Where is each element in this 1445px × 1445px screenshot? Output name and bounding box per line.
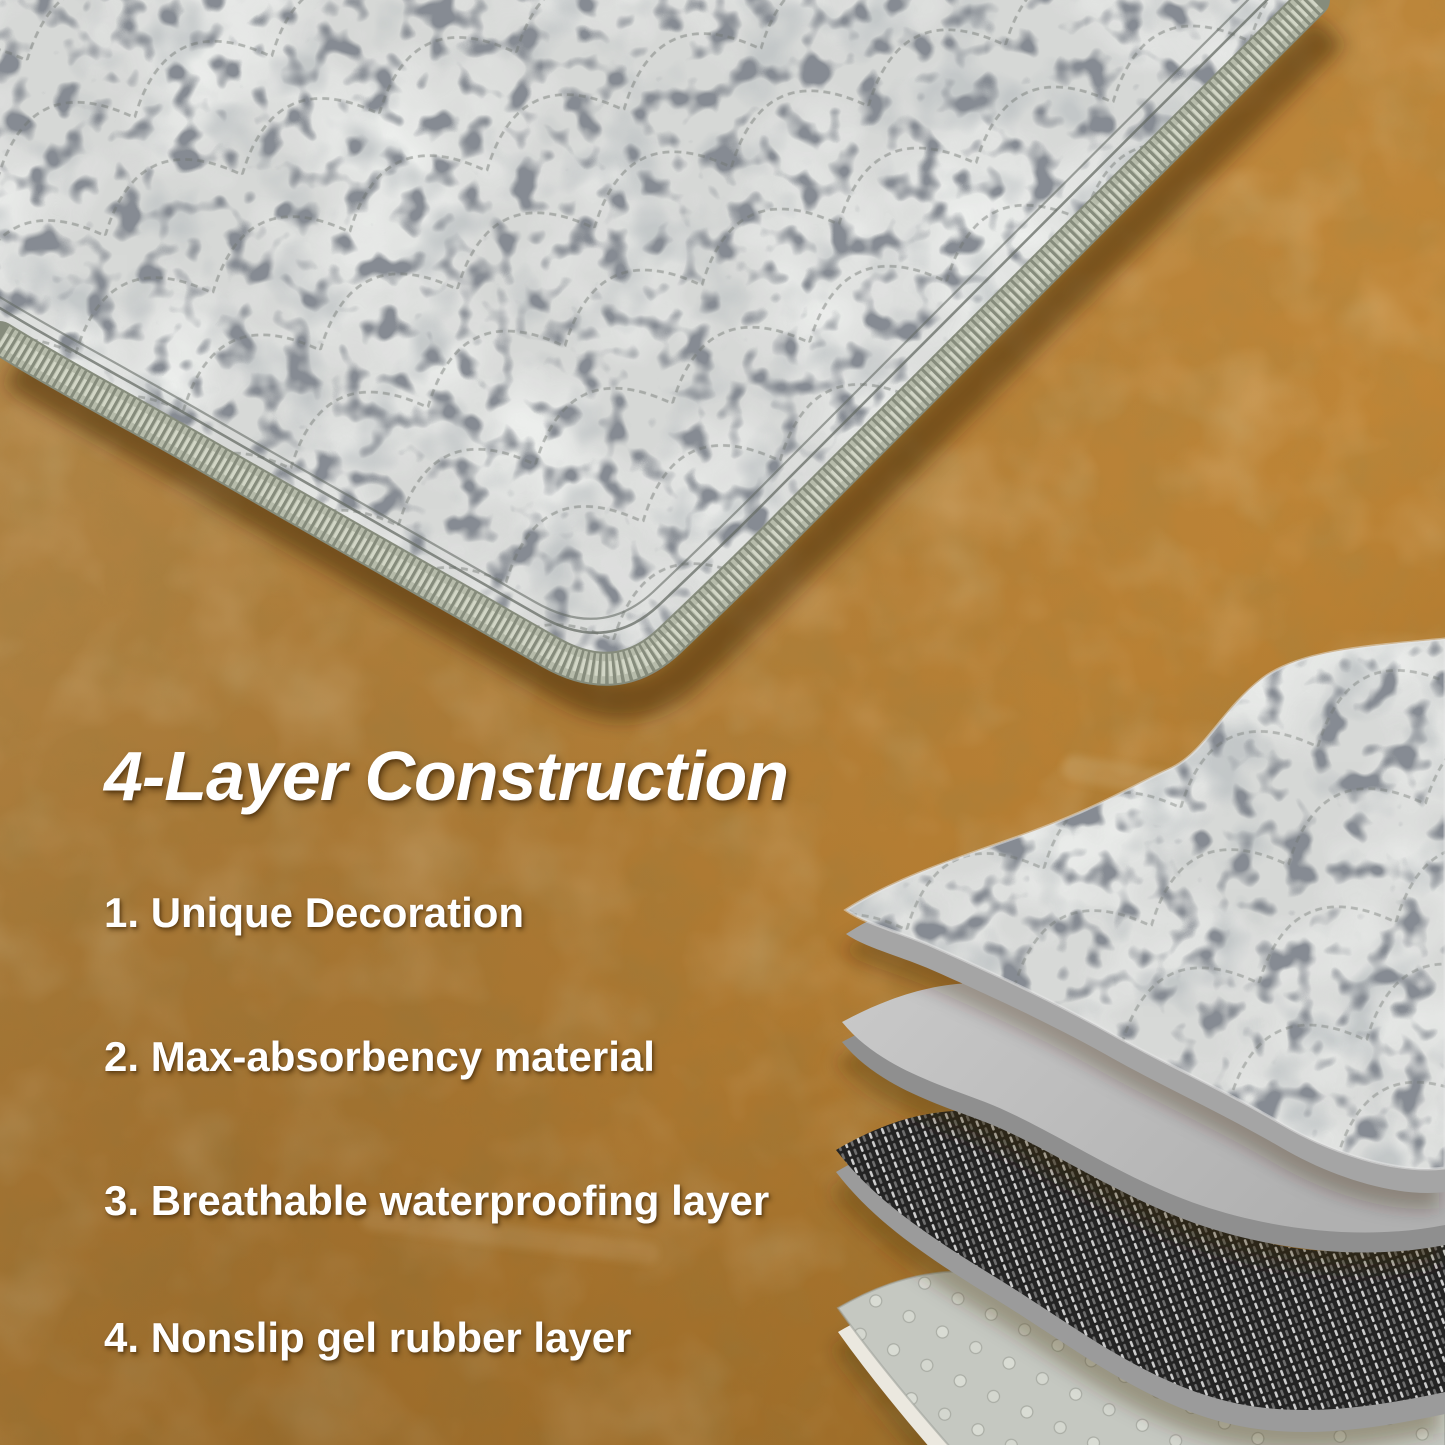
product-infographic: 4-Layer Construction 1. Unique Decoratio… bbox=[0, 0, 1445, 1445]
scene-graphic bbox=[0, 0, 1445, 1445]
headline: 4-Layer Construction bbox=[104, 736, 788, 816]
